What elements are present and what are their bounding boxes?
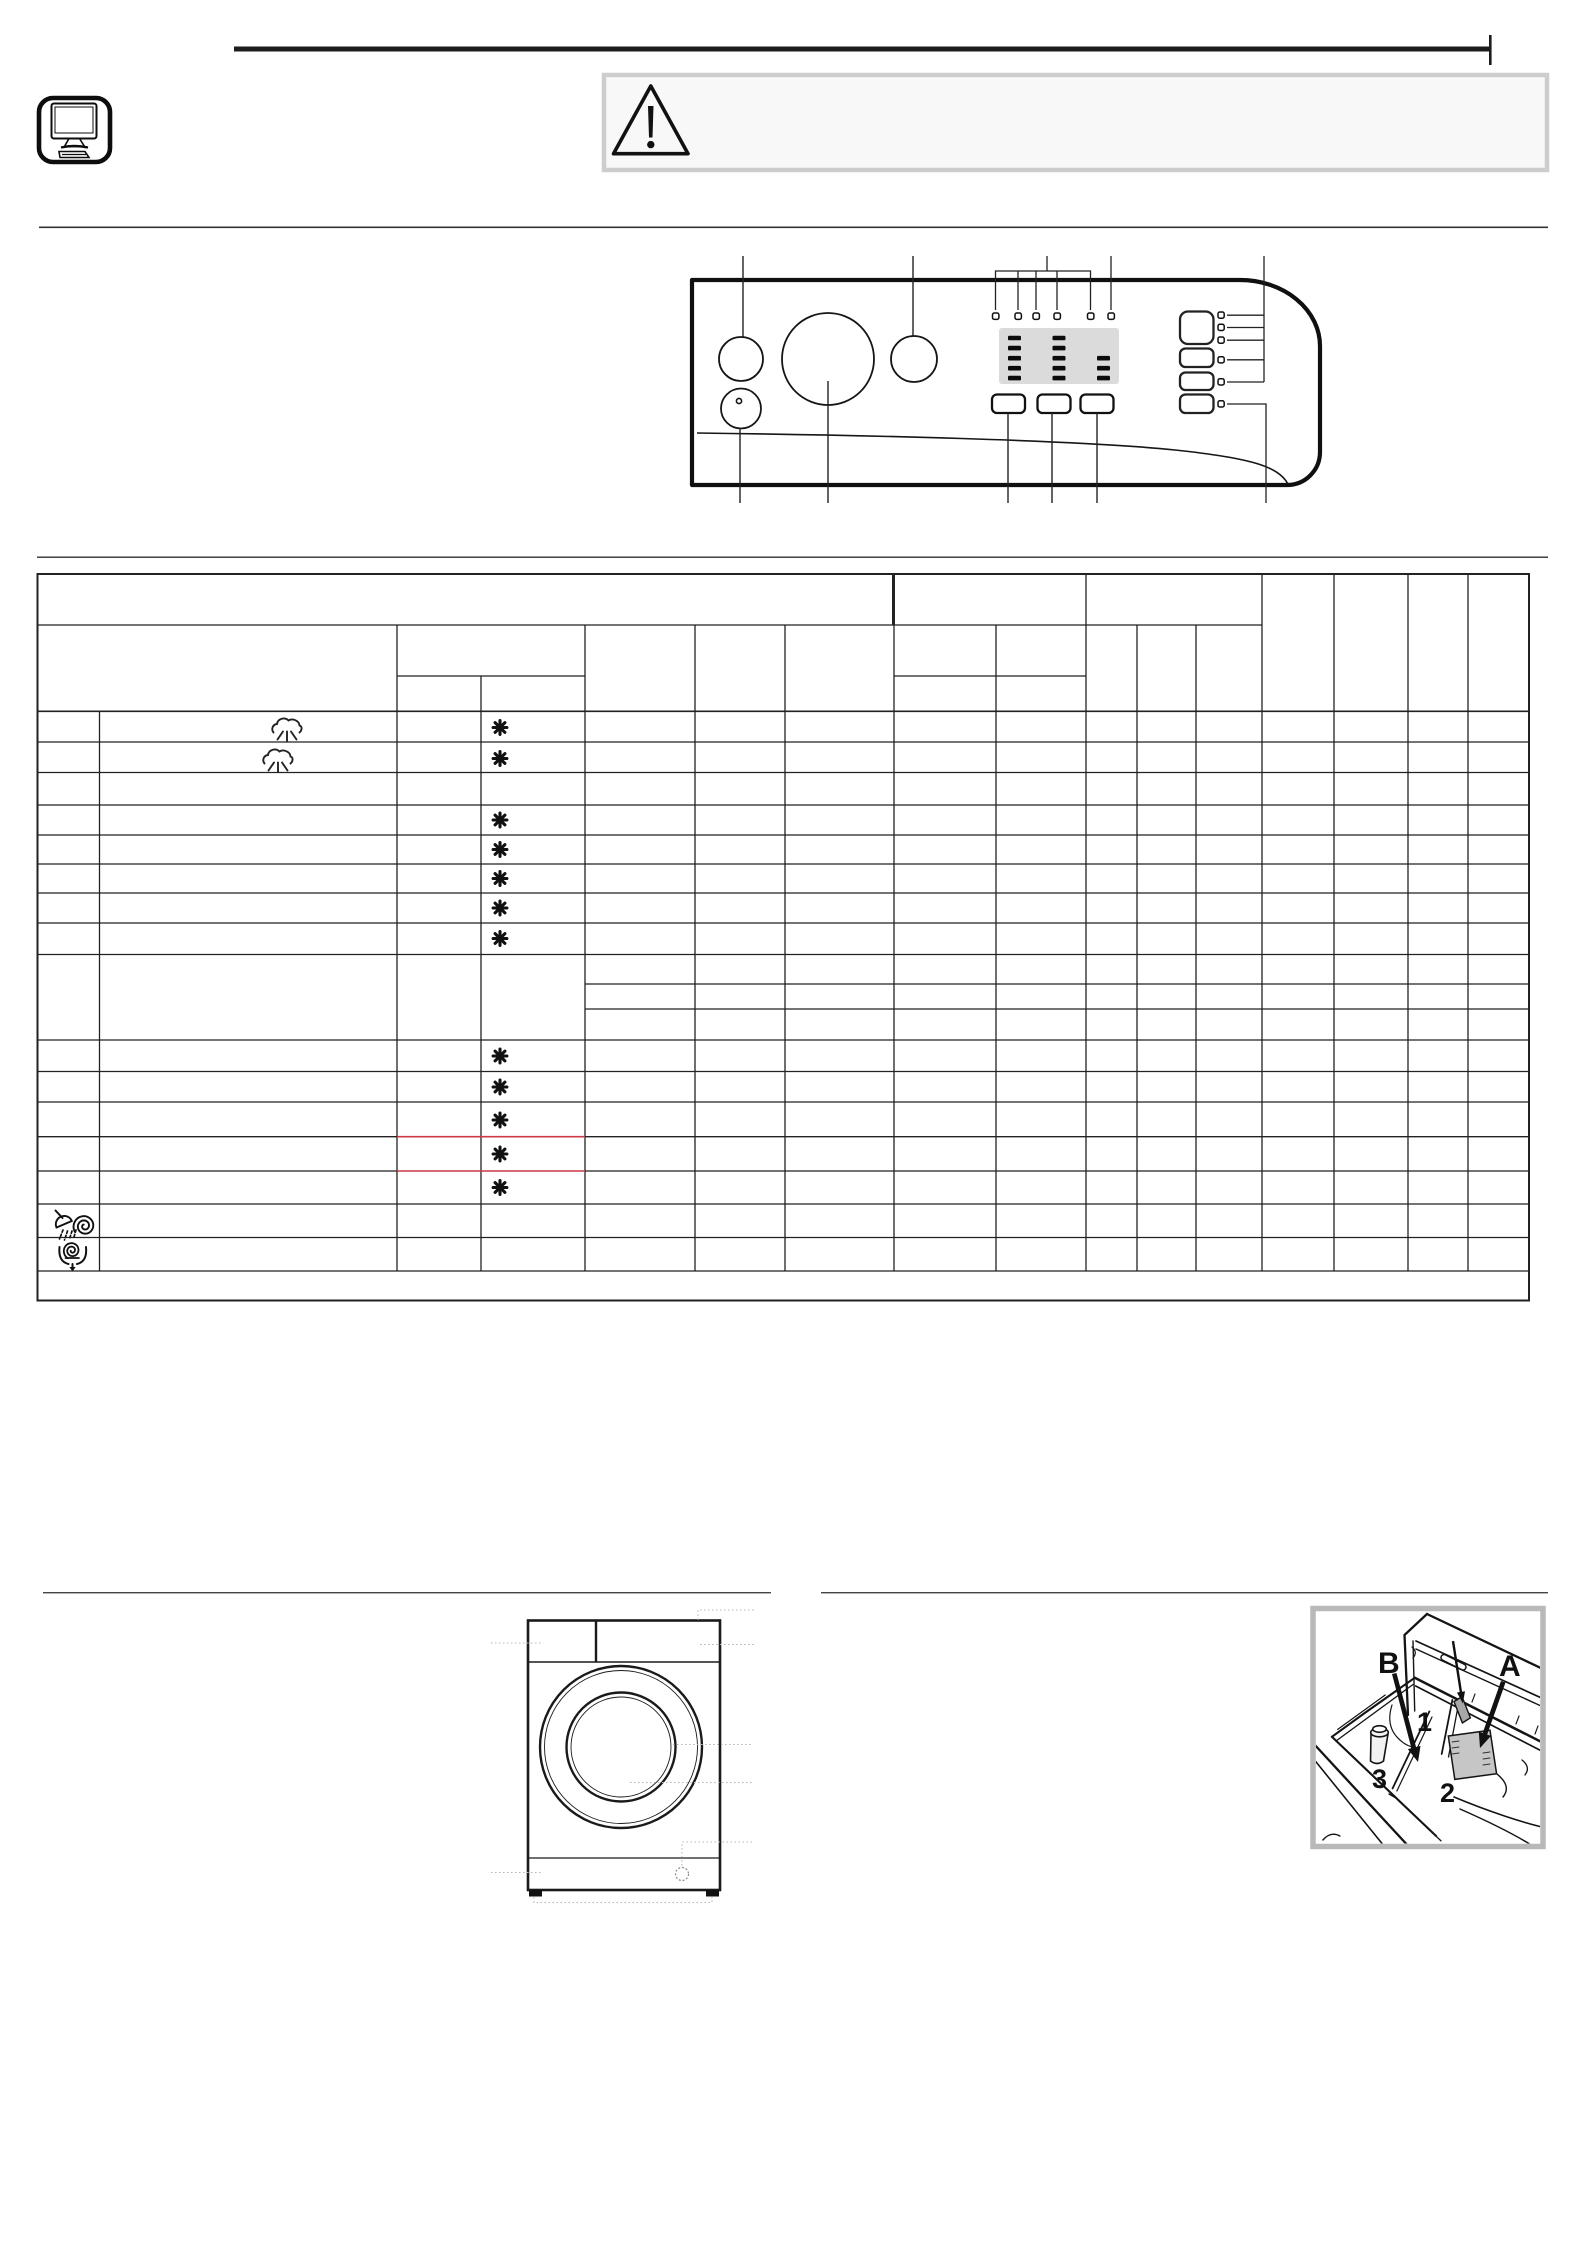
svg-text:A: A — [1499, 1650, 1521, 1683]
svg-text:3: 3 — [1372, 1764, 1387, 1794]
svg-text:2: 2 — [1440, 1778, 1455, 1808]
svg-text:1: 1 — [1417, 1707, 1432, 1737]
